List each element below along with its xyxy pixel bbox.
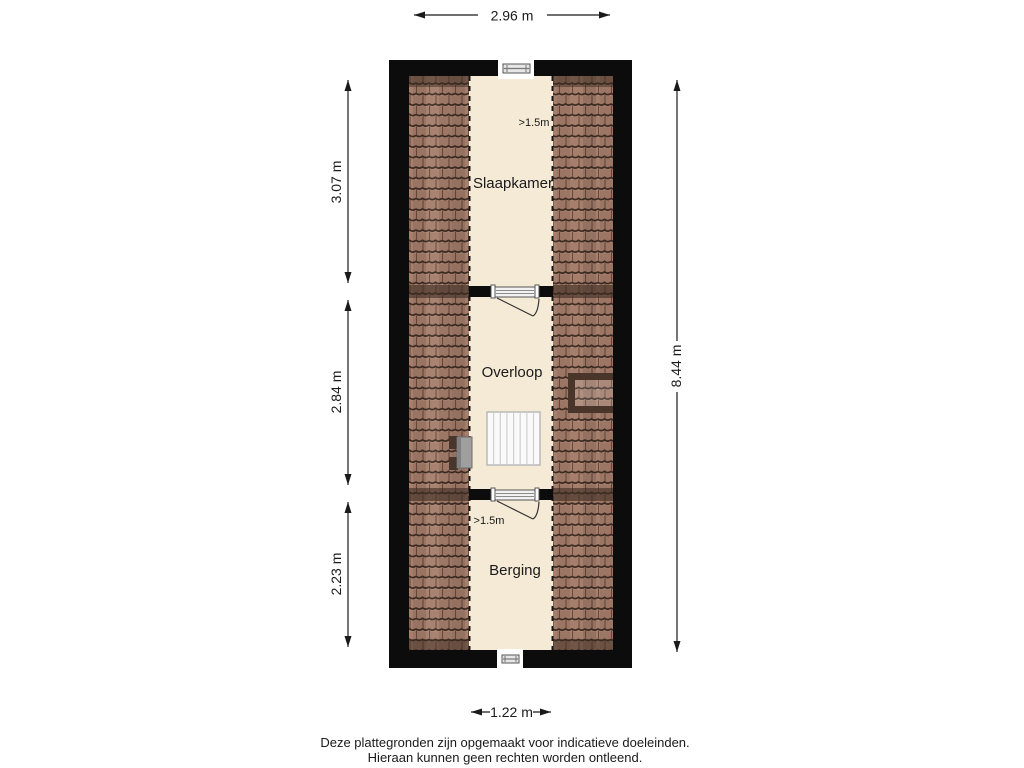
room-label-slaapkamer: Slaapkamer [473,175,553,192]
disclaimer-line-2: Hieraan kunnen geen rechten worden ontle… [368,750,643,765]
window-top [498,58,534,79]
dimension-top-label: 2.96 m [491,8,534,24]
arrowhead-down-icon [345,636,352,647]
arrowhead-down-icon [345,474,352,485]
staircase [487,412,540,465]
dimension-left-bottom: 2.23 m [328,502,352,647]
dimension-top: 2.96 m [414,8,610,24]
floorplan-page: Slaapkamer Overloop Berging >1.5m >1.5m … [0,0,1024,768]
arrowhead-down-icon [345,272,352,283]
disclaimer: Deze plattegronden zijn opgemaakt voor i… [320,735,689,765]
height-marker-berging: >1.5m [474,515,505,527]
arrowhead-right-icon [540,709,551,716]
dimension-bottom-label: 1.22 m [490,704,533,720]
window-bottom [497,649,523,671]
arrowhead-up-icon [345,80,352,91]
arrowhead-left-icon [471,709,482,716]
dimension-left-middle-label: 2.84 m [328,371,344,414]
dimension-left-top: 3.07 m [328,80,352,283]
arrowhead-right-icon [599,12,610,19]
floorplan-canvas: Slaapkamer Overloop Berging >1.5m >1.5m … [0,0,1024,768]
dimension-right-label: 8.44 m [668,345,684,388]
room-label-overloop: Overloop [482,364,543,381]
arrowhead-up-icon [345,300,352,311]
height-marker-slaapkamer: >1.5m [519,117,550,129]
dimension-bottom: 1.22 m [471,704,551,720]
arrowhead-up-icon [345,502,352,513]
arrowhead-down-icon [674,641,681,652]
arrowhead-up-icon [674,80,681,91]
dimension-left-middle: 2.84 m [328,300,352,485]
disclaimer-line-1: Deze plattegronden zijn opgemaakt voor i… [320,735,689,750]
dormer-frame [568,373,613,413]
dimension-left-bottom-label: 2.23 m [328,553,344,596]
arrowhead-left-icon [414,12,425,19]
dimension-right: 8.44 m [668,80,684,652]
room-label-berging: Berging [489,562,541,579]
dimension-left-top-label: 3.07 m [328,161,344,204]
floor-plan: Slaapkamer Overloop Berging >1.5m >1.5m [389,58,632,671]
